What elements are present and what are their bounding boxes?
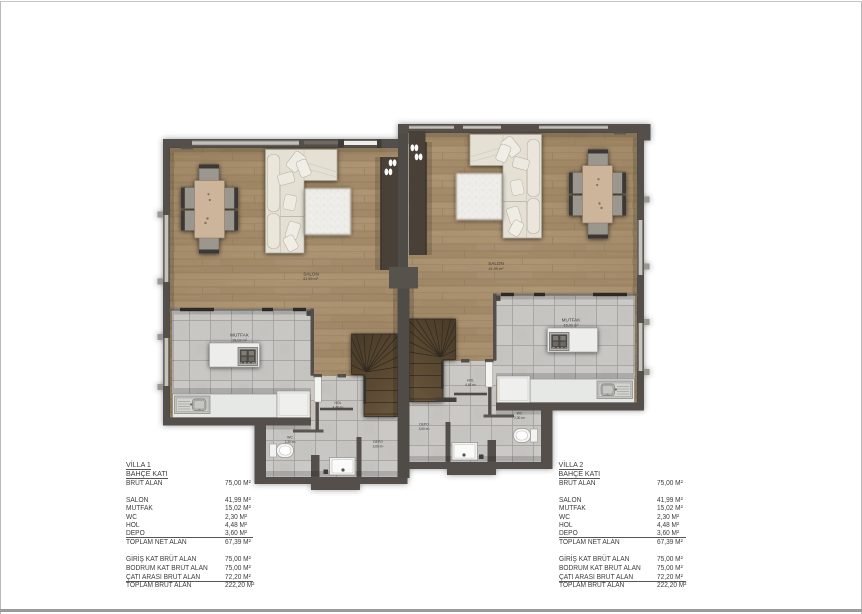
svg-text:3,60 m²: 3,60 m² [419, 427, 430, 431]
svg-text:41,99 m²: 41,99 m² [303, 277, 319, 281]
svg-text:MUTFAK: MUTFAK [562, 318, 582, 323]
svg-text:4,48 m²: 4,48 m² [465, 383, 476, 387]
svg-text:3,60 m²: 3,60 m² [373, 444, 384, 448]
svg-text:2,30 m²: 2,30 m² [285, 440, 296, 444]
svg-text:41,99 m²: 41,99 m² [489, 267, 505, 271]
svg-text:4,48 m²: 4,48 m² [333, 405, 344, 409]
svg-text:15,02 m²: 15,02 m² [232, 338, 248, 342]
svg-text:15,02 m²: 15,02 m² [564, 324, 580, 328]
svg-text:SALON: SALON [303, 271, 319, 276]
svg-text:2,30 m²: 2,30 m² [514, 416, 525, 420]
svg-text:MUTFAK: MUTFAK [230, 333, 250, 338]
svg-text:SALON: SALON [488, 261, 504, 266]
